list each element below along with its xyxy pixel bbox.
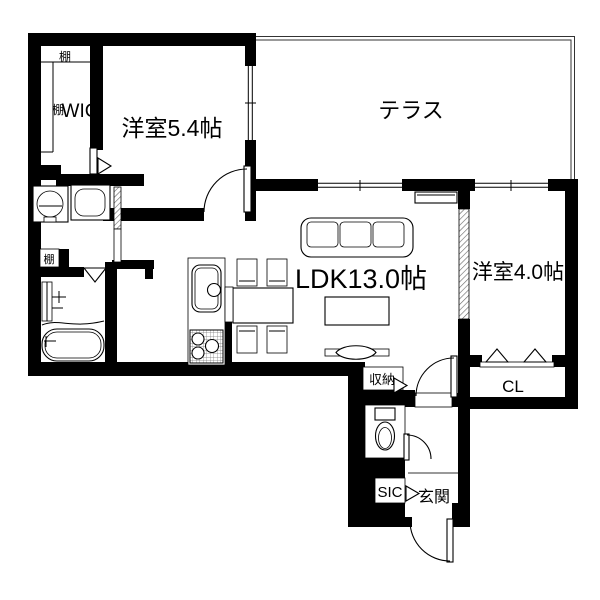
wall [348, 503, 412, 527]
dining-chair [267, 259, 287, 286]
wall [458, 191, 470, 209]
shoe-closet-label: SIC [377, 484, 402, 501]
dining-chair [237, 326, 257, 353]
wash-basin-bowl [75, 189, 105, 216]
dining-table [233, 288, 293, 323]
washroom-wall-panel [114, 229, 121, 262]
terrace-label: テラス [378, 98, 444, 123]
floor-plan-drawing: 棚 棚 WIC 洋室5.4帖 テラス LDK13.0帖 洋室4.0帖 CL 収納… [0, 0, 600, 600]
wall [458, 397, 578, 409]
wall [363, 390, 415, 407]
wall [365, 478, 375, 507]
wall [348, 374, 365, 507]
wall [402, 179, 475, 191]
wall [145, 260, 153, 279]
floor-plan-page: 棚 棚 WIC 洋室5.4帖 テラス LDK13.0帖 洋室4.0帖 CL 収納… [0, 0, 600, 600]
dining-chair [267, 326, 287, 353]
wall [365, 458, 405, 478]
entrance-label: 玄関 [418, 488, 450, 506]
wall [28, 33, 256, 46]
sliding-door-bedroom [459, 209, 469, 319]
closet-label: CL [502, 377, 524, 396]
wall [245, 33, 256, 66]
wall [40, 267, 84, 277]
shelf-label-washroom: 棚 [44, 252, 55, 266]
entrance-door-opening [412, 517, 450, 527]
sofa-cushion [340, 222, 371, 247]
coffee-table [325, 297, 389, 325]
stove-burner [206, 340, 219, 353]
washing-machine-base [44, 217, 56, 222]
ldk-label: LDK13.0帖 [295, 264, 427, 294]
wall [458, 355, 482, 367]
wall [58, 249, 69, 268]
hallway-door-threshold [415, 393, 452, 407]
toilet-tank [375, 408, 395, 420]
door-leaf-wic [90, 148, 97, 174]
sofa-cushion [373, 222, 404, 247]
wall [565, 179, 578, 409]
faucet-icon [208, 284, 221, 297]
wall [90, 46, 103, 150]
western-room-small-label: 洋室4.0帖 [472, 261, 564, 284]
door-leaf-hallway [451, 356, 457, 397]
toilet [375, 408, 395, 450]
toilet-seat [379, 428, 392, 449]
washing-machine-drum [37, 191, 63, 217]
stove-burner [192, 347, 204, 359]
stove-burner [192, 333, 204, 345]
tv-lens [336, 346, 376, 360]
western-room-large-label: 洋室5.4帖 [122, 115, 223, 141]
sofa-cushion [307, 222, 338, 247]
wall [105, 262, 117, 374]
air-conditioner [415, 192, 457, 203]
door-leaf-room54 [244, 166, 251, 212]
sliding-door-washroom [114, 187, 121, 229]
wall [253, 179, 318, 191]
wall [452, 503, 470, 527]
closet-folding-door-track [480, 362, 554, 367]
wall [552, 355, 578, 367]
storage-label: 収納 [369, 372, 395, 387]
door-leaf-toilet [404, 434, 409, 460]
door-leaf-entrance [447, 519, 453, 562]
dining-chair [237, 259, 257, 286]
sofa [301, 218, 413, 257]
wic-label: WIC [62, 101, 99, 122]
bathtub-inner [45, 332, 101, 358]
shelf-label-top: 棚 [59, 49, 71, 64]
wall [56, 174, 144, 186]
counter-partition [225, 287, 233, 322]
